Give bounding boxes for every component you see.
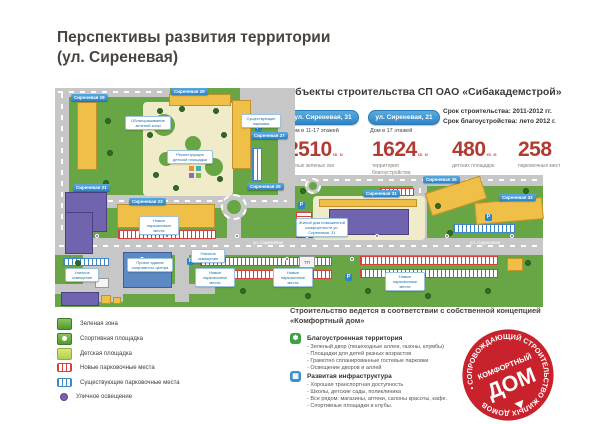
page-title-line2: (ул. Сиреневая) [57, 48, 330, 68]
existing-parking-strip [252, 148, 262, 181]
parking-p-icon: P [345, 274, 352, 281]
road-centerline [301, 179, 539, 181]
page-title-line1: Перспективы развития территории [57, 28, 330, 48]
landscaped-territory-icon: ✽ [290, 333, 301, 344]
legend-item-existing-parking: Существующие парковочные места [57, 378, 180, 387]
roundabout-center [309, 182, 317, 190]
tree-icon [173, 185, 179, 191]
legend-label: Существующие парковочные места [80, 380, 180, 386]
map-label-sirenevaya-33: Сиреневая 33 [499, 194, 536, 201]
legend-item-street-lighting: Уличное освещение [57, 393, 132, 401]
legend-item-new-parking: Новые парковочные места [57, 363, 155, 372]
building-sirenevaya-29 [169, 94, 231, 106]
legend-label: Спортивная площадка [80, 336, 143, 342]
legend-item-sport-ground: Спортивная площадка [57, 333, 143, 345]
callout-green-zone-improvement: Облагораживание зеленой зоны [125, 116, 171, 130]
map-label-sirenevaya-27: Сиреневая 27 [251, 132, 288, 139]
callout-new-parking: Новые парковочные места [139, 216, 179, 235]
tree-icon [105, 118, 111, 124]
tree-icon [217, 176, 223, 182]
group-title-infrastructure: Развитая инфраструктура [307, 373, 392, 380]
infrastructure-icon: ▦ [290, 371, 301, 382]
street-lamp-icon [445, 234, 449, 238]
tree-icon [240, 288, 246, 294]
group-title-territory: Благоустроенная территория [307, 335, 402, 342]
legend-label: Новые парковочные места [80, 365, 155, 371]
playground-icon [189, 173, 194, 178]
playground-icon [57, 348, 72, 360]
slide: Перспективы развития территории (ул. Сир… [0, 0, 600, 424]
existing-parking-icon [57, 378, 72, 387]
tree-icon [435, 203, 441, 209]
callout-playground-reconstruction: Реконструкция детской площадки [167, 150, 213, 164]
map-label-sirenevaya-23: Сиреневая 23 [129, 198, 166, 205]
tree-icon [485, 288, 491, 294]
tree-icon [153, 172, 159, 178]
playground-icon [196, 166, 201, 171]
map-label-sirenevaya-35: Сиреневая 35 [423, 176, 460, 183]
tree-icon [147, 132, 153, 138]
legend-item-green-zone: Зеленая зона [57, 318, 118, 330]
legend-label: Зеленая зона [80, 321, 118, 327]
page-title: Перспективы развития территории (ул. Сир… [57, 28, 330, 68]
street-lamp-icon [375, 234, 379, 238]
callout-new-parking: Новые парковочные места [273, 268, 313, 287]
callout-existing-parking: Существующие парковки [241, 114, 281, 128]
tree-icon [525, 260, 531, 266]
street-name-label: ул. Сиреневая [253, 240, 283, 245]
map-label-sirenevaya-25: Сиреневая 25 [247, 183, 284, 190]
road-centerline [61, 93, 63, 233]
tree-icon [425, 293, 431, 299]
tree-icon [75, 260, 81, 266]
tree-icon [157, 108, 163, 114]
building [61, 292, 99, 306]
map-label-sirenevaya-29: Сиреневая 29 [171, 88, 208, 95]
legend-item-playground: Детская площадка [57, 348, 132, 360]
callout-street-lighting: Уличное освещение [65, 268, 99, 282]
utility-building-tp: ТП [299, 256, 315, 268]
tree-icon [305, 293, 311, 299]
new-parking-icon [57, 363, 72, 372]
roundabout-center [227, 200, 241, 214]
street-lamp-icon [235, 234, 239, 238]
new-building-sirenevaya-21-wing [65, 212, 93, 254]
tree-icon [365, 288, 371, 294]
small-building [113, 297, 121, 304]
playground-icon [196, 173, 201, 178]
small-building [507, 258, 523, 271]
small-building [101, 295, 111, 304]
new-parking-strip [360, 256, 498, 265]
callout-new-parking: Новые парковочные места [385, 272, 425, 291]
road-centerline [59, 245, 537, 247]
new-parking-strip [360, 269, 498, 278]
sport-ground-icon [57, 333, 72, 345]
callout-new-parking: Новые парковочные места [195, 268, 235, 287]
existing-parking-strip [63, 258, 109, 266]
map-label-sirenevaya-31: Сиреневая 31 [363, 190, 400, 197]
building-strip [319, 199, 417, 207]
green-zone-icon [57, 318, 72, 330]
building-sirenevaya-19 [77, 102, 97, 170]
tree-icon [221, 132, 227, 138]
callout-comfort-house-31: Жилой дом повышенной комфортности ул. Си… [296, 218, 348, 237]
callout-sports-center: Проект здания спортивного центра [127, 258, 173, 272]
legend-label: Уличное освещение [76, 394, 132, 400]
playground-icon [189, 166, 194, 171]
street-name-label: ул. Сиреневая [470, 240, 500, 245]
tree-icon [213, 108, 219, 114]
tree-icon [179, 106, 185, 112]
callout-street-lighting: Уличное освещение [191, 249, 225, 263]
street-lamp-icon [60, 393, 68, 401]
tree-icon [300, 188, 306, 194]
tree-icon [107, 150, 113, 156]
map-label-sirenevaya-19: Сиреневая 19 [71, 94, 108, 101]
street-lamp-icon [285, 257, 289, 261]
street-lamp-icon [510, 234, 514, 238]
parking-p-icon: P [298, 202, 305, 209]
road-centerline [58, 91, 166, 93]
building-sirenevaya-27 [232, 100, 251, 169]
site-plan-map: ТП [55, 88, 543, 307]
existing-parking-strip [453, 224, 515, 233]
parking-p-icon: P [485, 214, 492, 221]
map-label-sirenevaya-21: Сиреневая 21 [73, 184, 110, 191]
street-lamp-icon [95, 234, 99, 238]
street-lamp-icon [350, 257, 354, 261]
legend-label: Детская площадка [80, 351, 132, 357]
